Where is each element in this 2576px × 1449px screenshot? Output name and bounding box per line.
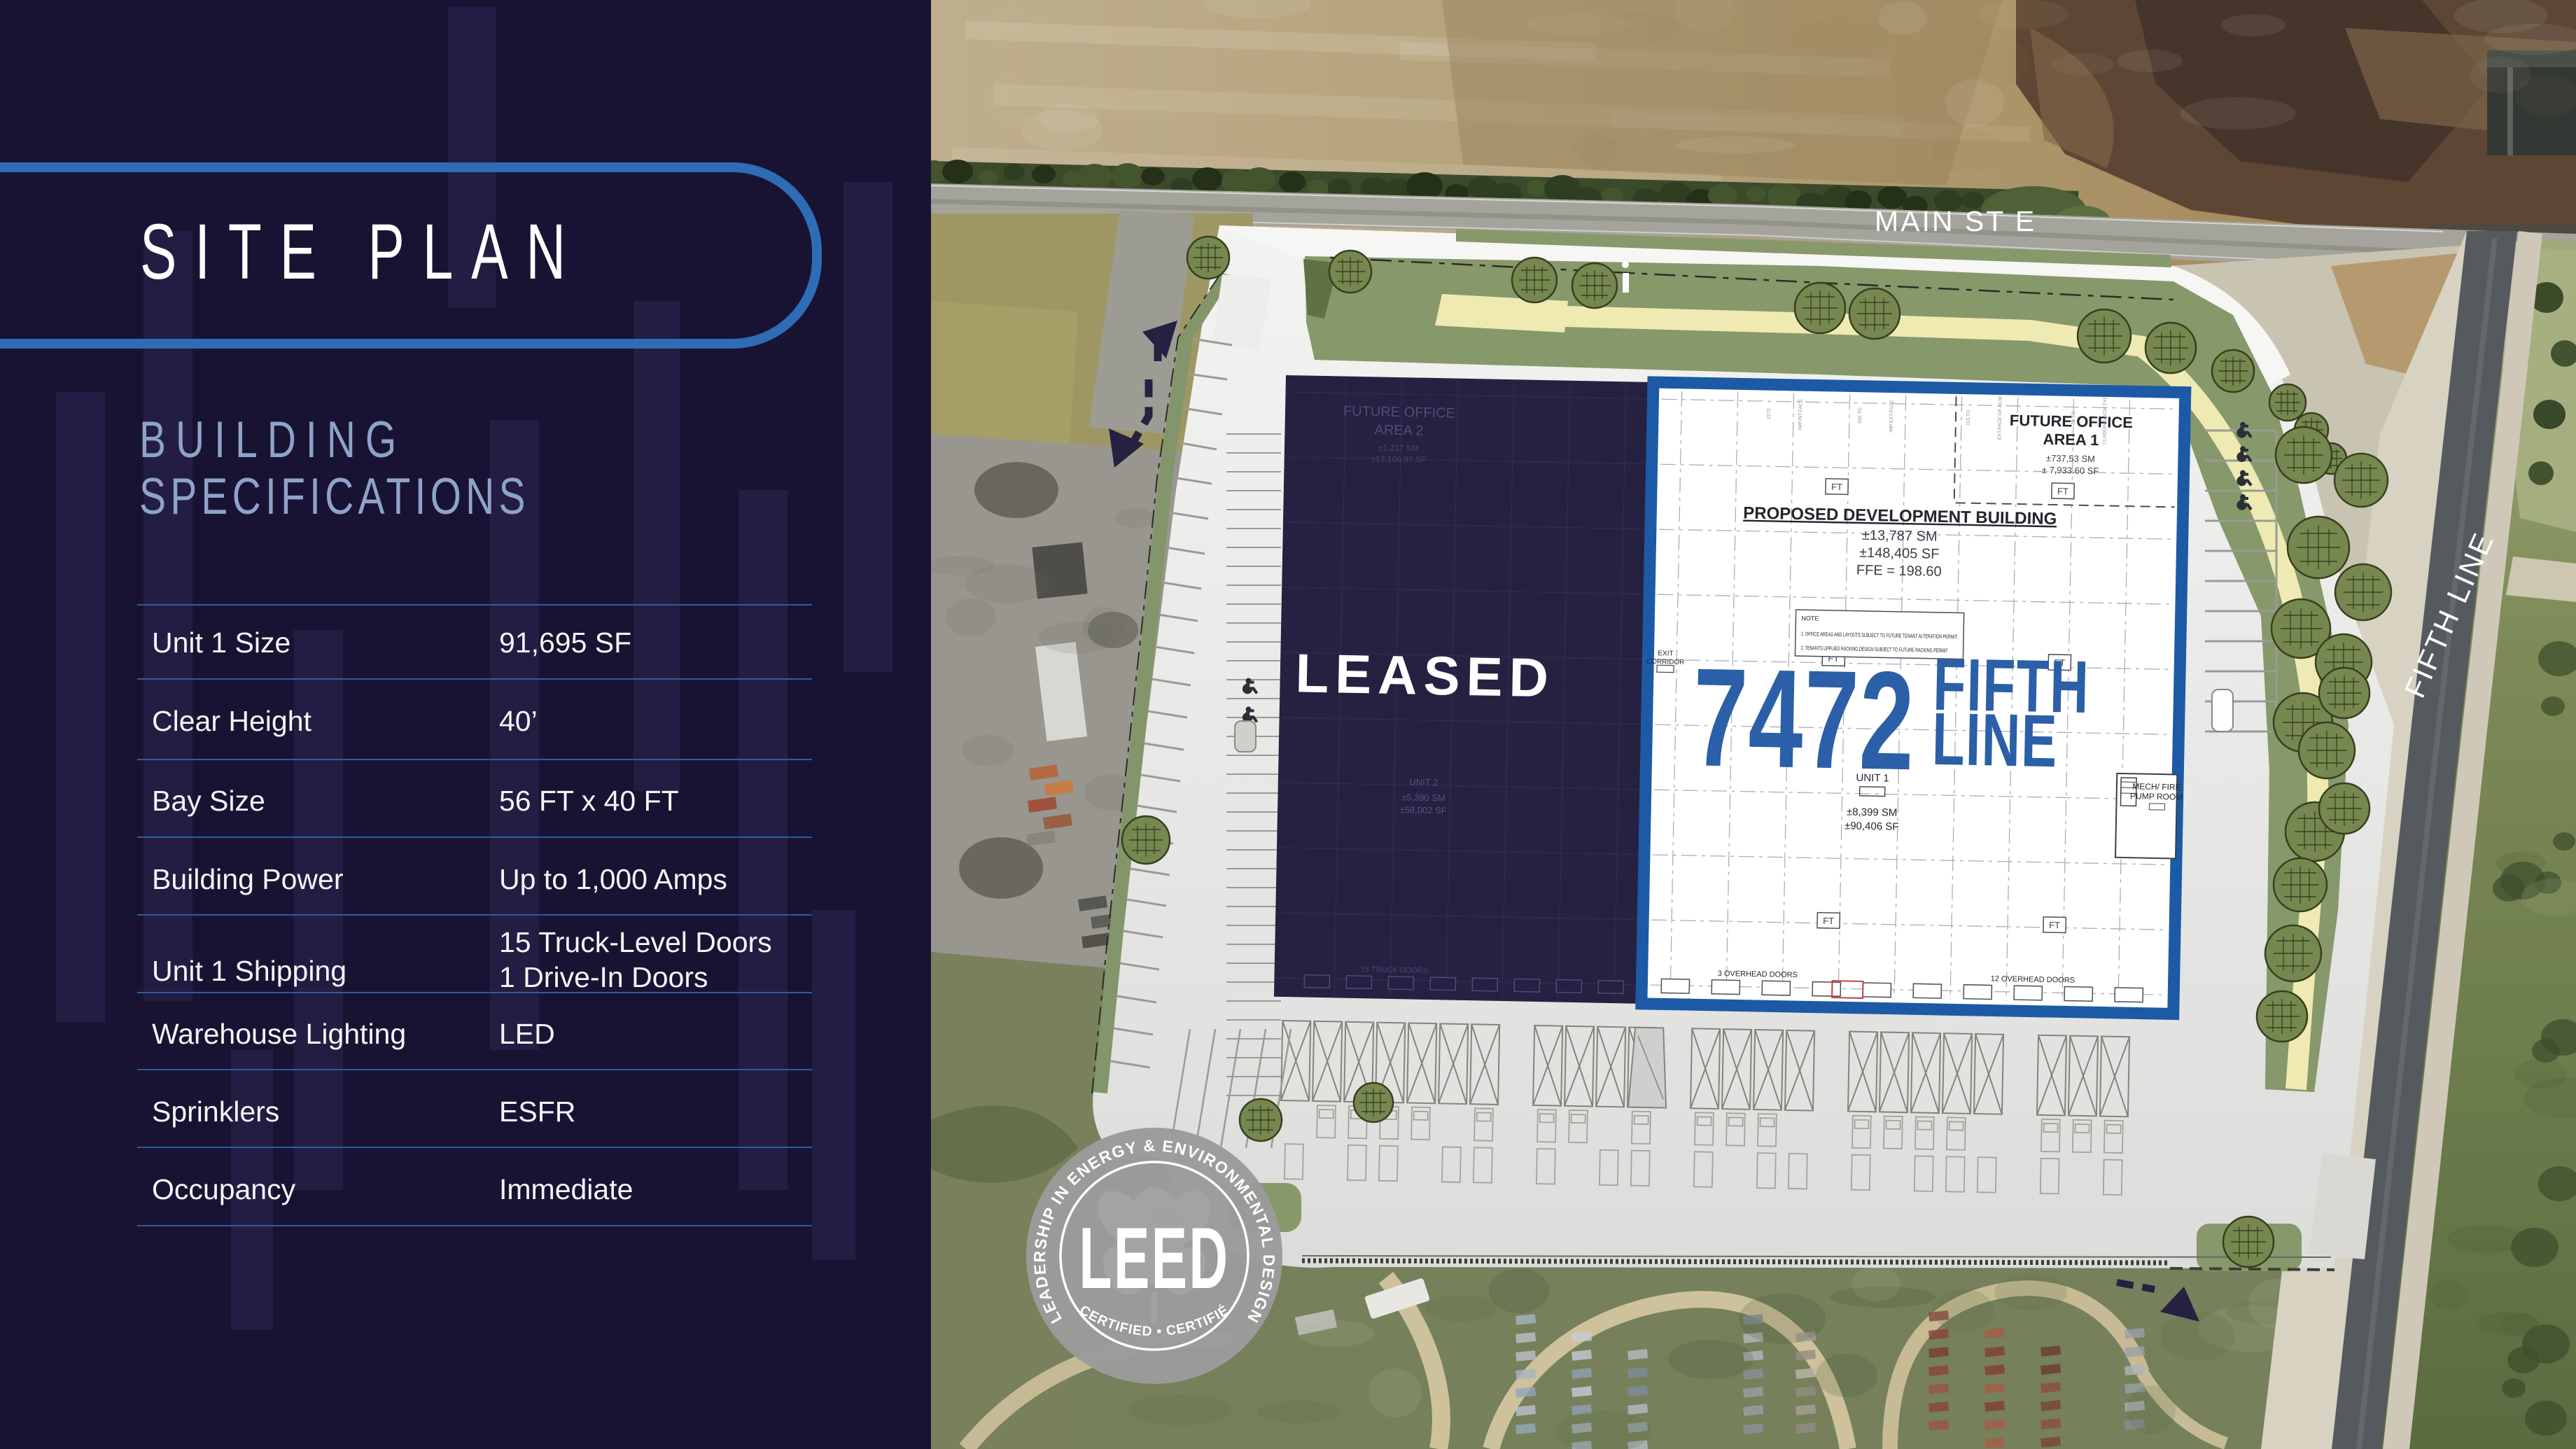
svg-text:±737,53 SM: ±737,53 SM (2046, 453, 2095, 464)
svg-text:728 TO: 728 TO (2071, 411, 2076, 428)
svg-text:IMP.EXT.FACE: IMP.EXT.FACE (1889, 400, 1895, 433)
svg-text:EXT.FACE OF ACM: EXT.FACE OF ACM (1997, 396, 2003, 440)
svg-text:MECH/ FIRE: MECH/ FIRE (2132, 781, 2181, 792)
svg-text:PUMP ROOM: PUMP ROOM (2130, 791, 2183, 801)
svg-text:AREA 2: AREA 2 (1374, 422, 1423, 438)
svg-text:EXIT: EXIT (1658, 650, 1673, 657)
svg-text:MAIN ST E: MAIN ST E (1875, 205, 2036, 237)
svg-text:±58,002 SF: ±58,002 SF (1399, 804, 1446, 815)
svg-text:LINE: LINE (1931, 696, 2059, 783)
svg-text:UNIT 2: UNIT 2 (1409, 776, 1438, 787)
svg-text:±90,406 SF: ±90,406 SF (1844, 820, 1899, 832)
svg-text:±8,399 SM: ±8,399 SM (1847, 806, 1898, 818)
svg-text:FFE = 198.60: FFE = 198.60 (1856, 563, 1942, 580)
svg-text:15 TRUCK DOORS: 15 TRUCK DOORS (1361, 965, 1429, 975)
svg-text:330 TO: 330 TO (1858, 407, 1863, 424)
svg-text:FT: FT (1831, 482, 1842, 492)
svg-text:IMP.INT.FACE: IMP.INT.FACE (1798, 399, 1804, 430)
svg-text:CLADDING/ACM.TYP: CLADDING/ACM.TYP (2102, 395, 2108, 444)
svg-text:±1,217 SM: ±1,217 SM (1378, 442, 1419, 453)
svg-text:LEED: LEED (1079, 1210, 1230, 1306)
svg-text:12 OVERHEAD DOORS: 12 OVERHEAD DOORS (1991, 974, 2075, 984)
svg-text:±5,390 SM: ±5,390 SM (1401, 792, 1445, 803)
svg-text:FT: FT (2049, 920, 2060, 930)
svg-text:UNIT 1: UNIT 1 (1856, 772, 1889, 785)
svg-text:±13,787 SM: ±13,787 SM (1862, 528, 1938, 545)
svg-text:2270: 2270 (1767, 408, 1772, 419)
svg-text:AREA 1: AREA 1 (2043, 430, 2099, 449)
svg-text:±13,100.97 SF: ±13,100.97 SF (1371, 454, 1426, 465)
svg-text:± 7,933.60 SF: ± 7,933.60 SF (2042, 465, 2099, 477)
svg-text:NOTE: NOTE (1801, 615, 1819, 622)
svg-text:FT: FT (2057, 486, 2068, 496)
svg-text:115 TO: 115 TO (1966, 409, 1971, 426)
svg-text:LEASED: LEASED (1295, 642, 1555, 708)
svg-text:3 OVERHEAD DOORS: 3 OVERHEAD DOORS (1718, 969, 1798, 979)
svg-text:FT: FT (1823, 916, 1834, 926)
svg-text:±148,405 SF: ±148,405 SF (1859, 545, 1940, 562)
svg-text:FUTURE OFFICE: FUTURE OFFICE (1343, 404, 1455, 421)
